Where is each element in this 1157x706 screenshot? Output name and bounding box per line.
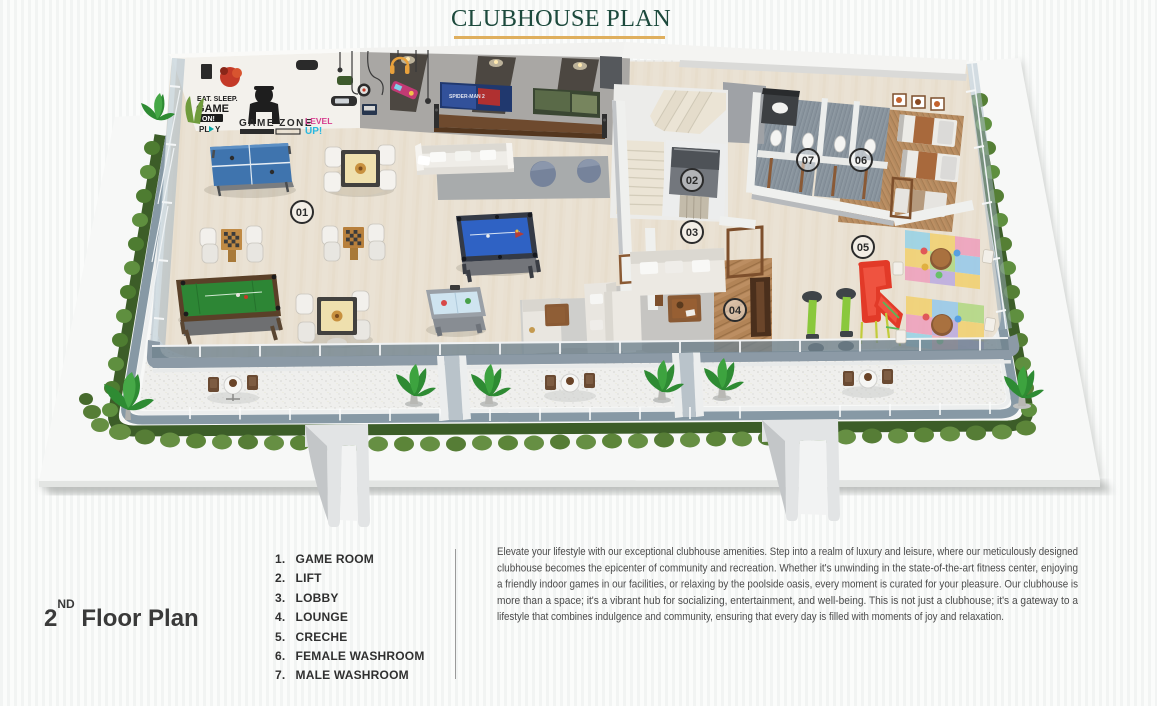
svg-text:02: 02 [686, 175, 698, 187]
svg-text:06: 06 [855, 155, 867, 167]
svg-text:01: 01 [296, 207, 308, 219]
svg-text:04: 04 [729, 305, 742, 317]
svg-text:clubhouse becomes the epicente: clubhouse becomes the epicenter of commu… [497, 562, 1078, 574]
svg-text:SPIDER-MAN 2: SPIDER-MAN 2 [449, 94, 485, 100]
svg-text:PL: PL [199, 125, 209, 134]
svg-text:more than a space; it's a vibr: more than a space; it's a vibrant hub fo… [497, 595, 1079, 607]
svg-text:ON!: ON! [202, 116, 215, 123]
svg-text:03: 03 [686, 227, 698, 239]
svg-text:05: 05 [857, 242, 869, 254]
svg-text:UP!: UP! [305, 126, 322, 137]
svg-text:lifestyle that combines indulg: lifestyle that combines indulgence and c… [497, 611, 1004, 623]
svg-text:LEVEL: LEVEL [305, 116, 332, 126]
svg-text:GAME ZONE: GAME ZONE [239, 118, 313, 129]
svg-text:07: 07 [802, 155, 814, 167]
svg-text:Y: Y [215, 125, 221, 134]
svg-text:Elevate your lifestyle with ou: Elevate your lifestyle with our exceptio… [497, 546, 1078, 558]
svg-text:a friendly indoor games in our: a friendly indoor games in our facilitie… [497, 579, 1078, 591]
